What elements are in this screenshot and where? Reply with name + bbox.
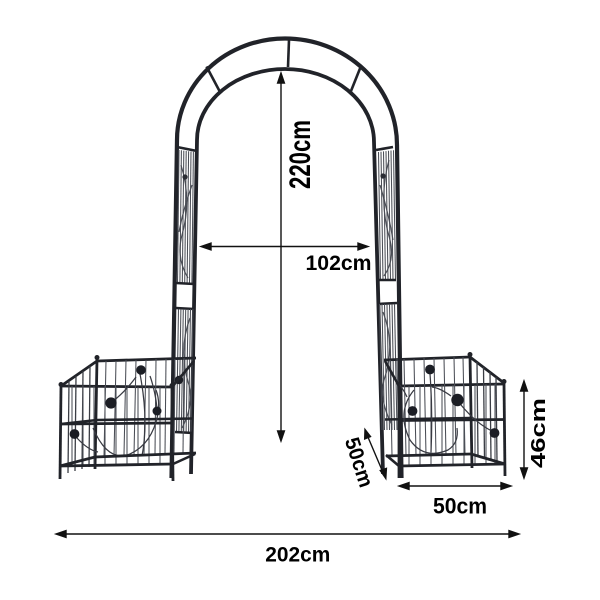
svg-text:50cm: 50cm: [433, 493, 487, 518]
svg-text:46cm: 46cm: [527, 398, 550, 468]
svg-text:102cm: 102cm: [306, 251, 372, 275]
svg-text:202cm: 202cm: [265, 544, 330, 567]
svg-text:220cm: 220cm: [284, 120, 317, 189]
